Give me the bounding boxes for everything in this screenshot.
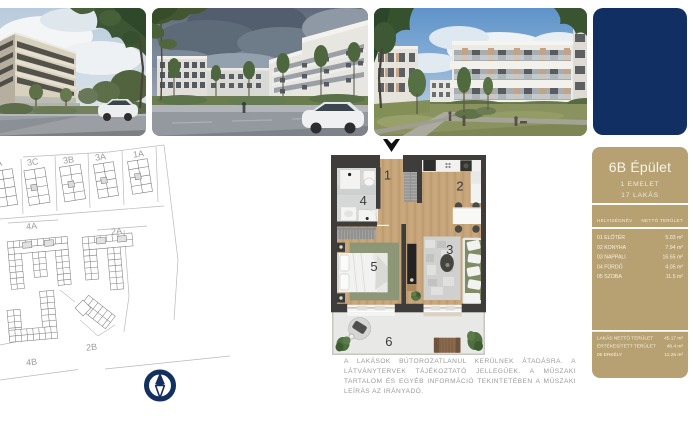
svg-text:1: 1 bbox=[384, 168, 391, 183]
svg-text:45.17 m²: 45.17 m² bbox=[664, 336, 683, 342]
svg-text:17 LAKÁS: 17 LAKÁS bbox=[621, 190, 659, 199]
svg-text:3A: 3A bbox=[94, 151, 106, 162]
svg-text:06 ERKÉLY: 06 ERKÉLY bbox=[597, 351, 623, 358]
svg-text:5.03 m²: 5.03 m² bbox=[665, 235, 683, 241]
svg-text:1 EMELET: 1 EMELET bbox=[620, 181, 659, 188]
svg-text:01 ELŐTÉR: 01 ELŐTÉR bbox=[597, 234, 625, 241]
svg-text:HELYISÉGNÉV: HELYISÉGNÉV bbox=[597, 217, 633, 223]
svg-text:2: 2 bbox=[456, 178, 463, 193]
svg-text:6B Épület: 6B Épület bbox=[609, 159, 672, 175]
svg-text:6: 6 bbox=[385, 334, 392, 349]
svg-text:NETTÓ TERÜLET: NETTÓ TERÜLET bbox=[641, 217, 683, 223]
svg-text:7.94 m²: 7.94 m² bbox=[665, 245, 683, 251]
svg-text:04 FÜRDŐ: 04 FÜRDŐ bbox=[597, 263, 623, 270]
svg-text:2A: 2A bbox=[111, 226, 123, 237]
svg-text:11.5 m²: 11.5 m² bbox=[666, 274, 683, 280]
svg-text:1A: 1A bbox=[132, 148, 144, 159]
svg-text:2B: 2B bbox=[86, 342, 98, 353]
svg-text:4.05 m²: 4.05 m² bbox=[665, 264, 683, 270]
svg-text:4A: 4A bbox=[26, 221, 38, 232]
svg-text:02 KONYHA: 02 KONYHA bbox=[597, 245, 627, 251]
svg-text:3B: 3B bbox=[62, 154, 74, 165]
svg-text:3: 3 bbox=[446, 242, 453, 257]
svg-text:4B: 4B bbox=[26, 357, 38, 368]
svg-text:3C: 3C bbox=[26, 156, 39, 168]
svg-text:LAKÁS NETTÓ TERÜLET: LAKÁS NETTÓ TERÜLET bbox=[597, 335, 653, 342]
svg-text:A: A bbox=[0, 158, 3, 169]
svg-text:16.65 m²: 16.65 m² bbox=[663, 255, 684, 261]
svg-text:11.25 m²: 11.25 m² bbox=[664, 352, 683, 358]
svg-text:4: 4 bbox=[360, 193, 367, 208]
svg-text:46.4 m²: 46.4 m² bbox=[667, 344, 684, 350]
svg-text:5: 5 bbox=[370, 259, 377, 274]
svg-text:ÉRTÉKESÍTETT TERÜLET: ÉRTÉKESÍTETT TERÜLET bbox=[597, 343, 656, 350]
svg-text:03 NAPPALI: 03 NAPPALI bbox=[597, 255, 626, 261]
svg-text:05 SZOBA: 05 SZOBA bbox=[597, 274, 622, 280]
